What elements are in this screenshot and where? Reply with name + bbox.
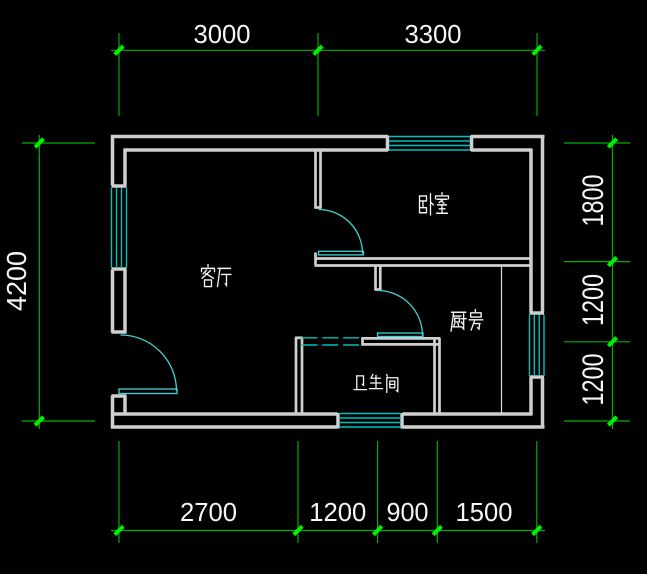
svg-text:1500: 1500 (456, 497, 513, 527)
svg-text:3000: 3000 (194, 19, 251, 49)
svg-text:1200: 1200 (577, 274, 610, 326)
svg-text:2700: 2700 (180, 497, 237, 527)
svg-text:900: 900 (387, 497, 429, 527)
svg-text:1200: 1200 (577, 354, 610, 406)
svg-text:3300: 3300 (405, 19, 462, 49)
svg-text:4200: 4200 (1, 251, 32, 311)
svg-text:1800: 1800 (577, 175, 610, 227)
svg-text:1200: 1200 (309, 497, 366, 527)
